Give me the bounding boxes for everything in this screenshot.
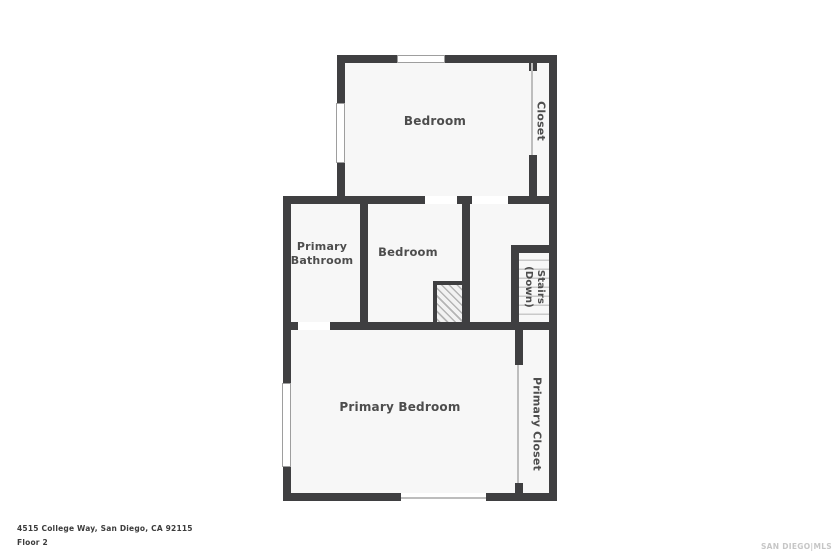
room-label-primary-bathroom: Primary Bathroom	[280, 240, 364, 268]
closet-partition-line	[531, 63, 533, 155]
sliding-door-line	[401, 497, 486, 499]
wall-segment	[283, 196, 425, 204]
door-opening	[298, 322, 330, 330]
wall-segment	[529, 155, 537, 204]
window	[282, 383, 291, 467]
floor-plan: Bedroom Closet Primary Bathroom Bedroom …	[0, 0, 839, 560]
window	[336, 103, 345, 163]
door-opening	[472, 196, 508, 204]
wall-segment	[515, 483, 523, 501]
floor-label: Floor 2	[17, 538, 48, 547]
window	[397, 55, 445, 63]
room-label-closet: Closet	[535, 101, 548, 141]
closet-partition-line	[517, 365, 519, 483]
room-label-primary-bedroom: Primary Bedroom	[330, 400, 470, 414]
room-label-bedroom-top: Bedroom	[385, 114, 485, 128]
wall-segment	[337, 55, 557, 63]
wall-segment	[283, 493, 401, 501]
wall-segment	[511, 245, 519, 330]
room-label-bedroom-middle: Bedroom	[363, 245, 453, 259]
room-label-stairs: Stairs (Down)	[522, 263, 546, 311]
mls-watermark: SAN DIEGO|MLS	[750, 542, 832, 551]
property-address: 4515 College Way, San Diego, CA 92115	[17, 524, 193, 533]
wall-segment	[515, 330, 523, 365]
door-opening	[425, 196, 457, 204]
wall-segment	[462, 196, 470, 330]
wall-segment	[549, 55, 557, 501]
room-label-primary-closet: Primary Closet	[531, 377, 544, 471]
top-section-floor	[337, 55, 557, 204]
